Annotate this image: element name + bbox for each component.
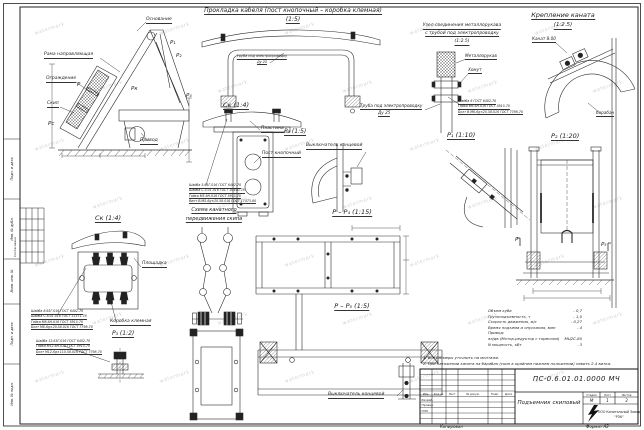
- view-p2-linework: [516, 147, 614, 301]
- doc-title: Подъемник скиповый: [517, 400, 580, 406]
- label-ograzhdenie: Ограждение: [46, 77, 76, 83]
- sleeve-view-scale: (1:2.5): [454, 40, 469, 46]
- label-limit-switch: Выключатель концевой: [306, 144, 362, 150]
- tb-row-prover: Провер.: [422, 403, 434, 407]
- terminal-fastener-callout-lower: Шайба 12.65Г.016 ГОСТ 6402-70 Гайка М12-…: [36, 340, 102, 356]
- drum-label: барабан: [596, 111, 614, 117]
- p2-mark-left: Р: [515, 238, 518, 244]
- label-privod: Привод: [140, 139, 158, 145]
- label-plastina: Пластина: [261, 127, 284, 133]
- view-rope-mount-linework: [545, 43, 635, 118]
- title-block: ПС-0.6.01.01.0000 МЧ Подъемник скиповый …: [420, 369, 638, 424]
- mark-pk: Рк: [131, 87, 138, 93]
- button-post-fastener-callout: Шайба 5.65Г.016 ГОСТ 6402-70 Шайба С.5.0…: [189, 184, 256, 205]
- drawing-sheet: watermarkwatermarkwatermarkwatermarkwate…: [0, 0, 644, 430]
- tb-row-gip: ГИП: [422, 409, 428, 413]
- mark-p: Р: [77, 83, 80, 89]
- label-metallorukav: Металлорукав: [465, 54, 497, 60]
- sleeve-tube-label-2: Ду 25: [378, 111, 390, 117]
- p2-mark-right: Р₅: [601, 243, 607, 249]
- rope-scheme-title-2: передвижения скипа: [186, 217, 242, 223]
- mark-ps: Рс: [48, 122, 54, 128]
- sleeve-view-title-2: с трубой под электропроводку: [425, 32, 499, 38]
- view-rope-scheme-linework: [190, 227, 243, 420]
- label-limit-switch-bottom: Выключатель концевой: [328, 393, 384, 399]
- terminal-box-view-label: Ск (1:4): [95, 215, 121, 223]
- drawing-notes: 1. Все размеры уточнить на монтаже. 2. П…: [423, 355, 636, 366]
- label-skip: Скип: [47, 102, 59, 108]
- tb-col-list: Лист: [449, 392, 456, 396]
- tb-col-izm: Изм.: [423, 392, 429, 396]
- stamp-vzam-inv: Взам. инв. №: [10, 269, 14, 292]
- pp5-view-label: Р – Р₅ (1:5): [334, 303, 369, 311]
- mark-p2: Р₂: [176, 54, 182, 60]
- view-pp5-linework: [258, 342, 442, 399]
- cable-view-scale: (1:5): [286, 17, 300, 24]
- rope-mount-title: Крепление каната: [531, 12, 595, 20]
- tb-list-v: 1: [606, 398, 609, 403]
- button-post-view-label: Ск (1:4): [223, 102, 249, 110]
- tb-col-koluch: Кол.уч.: [434, 392, 444, 396]
- pp4-view-label: Р – Р₄ (1:15): [332, 209, 372, 217]
- tb-stage-v: М: [590, 398, 594, 403]
- stamp-podp-data-2: Подп. и дата: [10, 322, 14, 345]
- terminal-detail-label: Р₃ (1:2): [112, 331, 134, 338]
- label-post-knopochny: Пост кнопочный: [262, 152, 301, 158]
- technical-specs: Объем куба- 0,7 Грузоподъемность, т- 1,0…: [488, 308, 582, 347]
- view-limit-switch-linework: [312, 143, 366, 212]
- format-label: Формат А2: [586, 425, 609, 429]
- tb-col-data: Дата: [505, 392, 512, 396]
- tb-col-podp: Подп.: [491, 392, 499, 396]
- tb-listov-h: Листов: [621, 393, 631, 397]
- stamp-podp-data-1: Подп. и дата: [10, 157, 14, 180]
- mark-p1: Р₁: [170, 41, 176, 47]
- rope-mount-scale: (1:2.5): [554, 23, 572, 30]
- p2-view-label: Р₂ (1:20): [551, 133, 579, 141]
- label-khomut: Хомут: [468, 68, 482, 74]
- company-name-1: ООО Капитальный Завод: [598, 410, 640, 414]
- tb-listov-v: 3: [625, 398, 628, 403]
- label-osnovanie: Основание: [146, 18, 172, 24]
- rope-scheme-title-1: Схема канатного: [191, 208, 236, 214]
- tb-row-razrab: Разраб.: [422, 398, 434, 402]
- rope-label: Канат 8.00: [532, 37, 556, 43]
- p1-view-label: Р₁ (1:10): [447, 132, 475, 140]
- tb-col-dokum: № докум.: [466, 392, 479, 396]
- view-sleeve-linework: [425, 52, 469, 133]
- view-p1-linework: [446, 148, 530, 228]
- sleeve-fastener-callout: Шайба 6 ГОСТ 6402-70 Гайка М6-6Н.016 ГОС…: [458, 100, 523, 116]
- cable-view-title: Прокладка кабеля (пост кнопочный – короб…: [204, 8, 382, 15]
- doc-number: ПС-0.6.01.01.0000 МЧ: [533, 375, 620, 383]
- stamp-inv-podl: Инв. № подл.: [10, 382, 14, 405]
- sleeve-tube-label-1: Труба под электропроводку: [360, 104, 422, 110]
- spec-row: N мощность, кВт- 3: [488, 342, 582, 348]
- column-lines: [612, 38, 616, 308]
- cable-tube-label-2: Ду 25: [257, 61, 267, 66]
- stamp-soglasovano: Согласовано: [13, 237, 17, 257]
- tb-list-h: Лист: [604, 393, 611, 397]
- note-2: 2. При натяжении каната на барабан (скип…: [423, 361, 636, 367]
- terminal-fastener-callout-upper: Шайба 8.65Г.016 ГОСТ 6402-70 Шайба С.8.0…: [31, 310, 93, 331]
- label-ploshchadka: Площадка: [142, 262, 167, 268]
- company-name-2: "РЗК": [614, 415, 623, 419]
- view-terminal-detail-linework: [98, 348, 144, 384]
- copied-label: Копировал: [440, 425, 463, 429]
- mark-p4: Р₄: [186, 94, 192, 100]
- tb-stage-h: Стадия: [586, 393, 596, 397]
- label-rama: Рама направляющая: [44, 53, 93, 59]
- view-pp4-linework: [256, 225, 409, 350]
- sleeve-view-title-1: Узел соединения металлорукава: [423, 24, 501, 30]
- label-korobka-klemnaya: Коробка клемная: [110, 320, 151, 326]
- limit-switch-view-label: Р₃ (1:5): [284, 129, 306, 136]
